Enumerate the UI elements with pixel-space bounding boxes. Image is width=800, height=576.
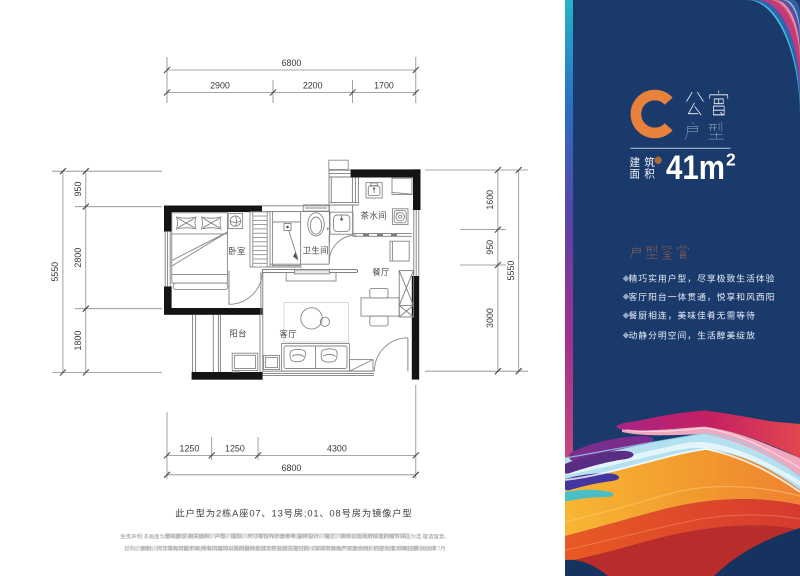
svg-text:面积: 面积 [630,169,660,181]
svg-text:建筑: 建筑 [630,156,660,169]
svg-text:结构、面积、尺寸等有可能不同,所有内容均以政府最终批准文件及: 结构、面积、尺寸等有可能不同,所有内容均以政府最终批准文件及双方签订的《深圳市房… [124,545,445,553]
svg-text:41m: 41m [666,149,725,187]
svg-text:3000: 3000 [485,308,495,328]
svg-text:4300: 4300 [327,443,347,453]
svg-text:950: 950 [485,240,495,255]
svg-text:1800: 1800 [73,331,83,351]
svg-text:1600: 1600 [485,190,495,210]
svg-text:精巧实用户型，尽享极致生活体验: 精巧实用户型，尽享极致生活体验 [629,273,776,284]
svg-text:餐厅: 餐厅 [372,267,390,277]
svg-text:客厅阳台一体贯通，悦享和风西阳: 客厅阳台一体贯通，悦享和风西阳 [629,291,776,302]
svg-text:1700: 1700 [374,81,394,91]
svg-text:5550: 5550 [506,261,516,281]
svg-text:免责声明:本画面为意向建议,相关面积、户型、图际、尺寸等仅作: 免责声明:本画面为意向建议,相关面积、户型、图际、尺寸等仅作示意参考,最终设计、… [120,533,449,541]
svg-text:2200: 2200 [303,81,323,91]
svg-text:动静分明空间，生活醇美绽放: 动静分明空间，生活醇美绽放 [629,330,756,341]
svg-text:阳台: 阳台 [229,328,247,338]
svg-text:6800: 6800 [282,58,302,68]
svg-text:客厅: 客厅 [280,329,298,339]
svg-text:卫生间: 卫生间 [303,246,329,256]
svg-text:2: 2 [726,150,736,170]
svg-text:1250: 1250 [225,443,245,453]
svg-text:餐厨相连，美味佳肴无需等待: 餐厨相连，美味佳肴无需等待 [629,310,756,321]
svg-text:6800: 6800 [282,463,302,473]
svg-text:此户型为2栋A座07、13号房;01、08号房为镜像户型: 此户型为2栋A座07、13号房;01、08号房为镜像户型 [175,508,412,519]
svg-text:5550: 5550 [50,262,60,282]
svg-text:2900: 2900 [210,81,230,91]
svg-text:950: 950 [73,182,83,197]
svg-text:2800: 2800 [73,248,83,268]
svg-text:茶水间: 茶水间 [361,210,387,220]
svg-text:1250: 1250 [180,443,200,453]
svg-text:卧室: 卧室 [228,246,246,256]
